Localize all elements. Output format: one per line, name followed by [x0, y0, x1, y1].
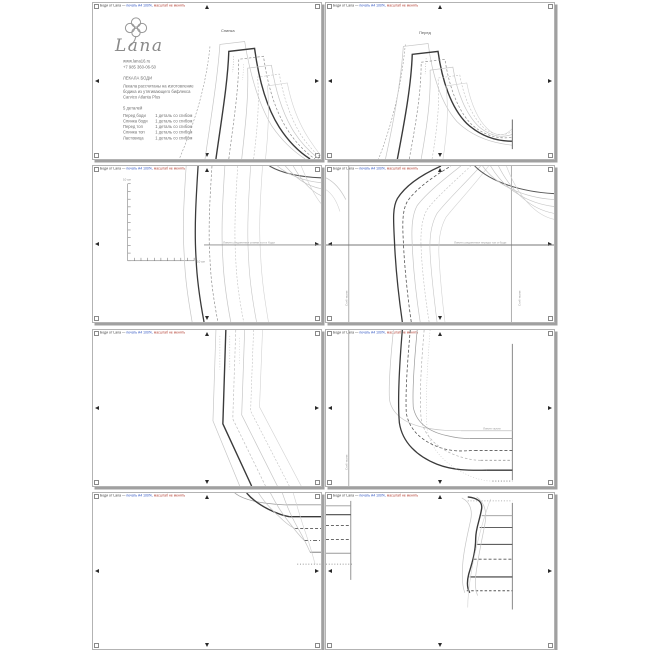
pattern-curves — [326, 330, 554, 486]
pattern-page-7: Боди от Lana — печать А4 100%, масштаб н… — [92, 492, 322, 650]
pattern-page-6: Боди от Lana — печать А4 100%, масштаб н… — [325, 329, 555, 487]
pattern-page-2: Боди от Lana — печать А4 100%, масштаб н… — [325, 2, 555, 160]
pages-grid: Lana www.lana16.ru +7 985 360-06-50 ЛЕКА… — [92, 2, 555, 650]
pattern-curves — [93, 166, 321, 322]
piece-label-spinka: Спинка — [221, 29, 235, 33]
piece-label-pered: Перед — [419, 31, 431, 35]
pattern-curves — [326, 3, 554, 159]
fold-line-label: Сгиб ткани — [345, 291, 348, 306]
pattern-curves — [93, 493, 321, 649]
pattern-curves — [93, 3, 321, 159]
pattern-sheet-canvas: Lana www.lana16.ru +7 985 360-06-50 ЛЕКА… — [0, 0, 650, 650]
pattern-page-3: Боди от Lana — печать А4 100%, масштаб н… — [92, 165, 322, 323]
pattern-curves — [93, 330, 321, 486]
join-line-label: Линия соединения переда топ и боди — [454, 241, 506, 244]
pattern-page-1: Lana www.lana16.ru +7 985 360-06-50 ЛЕКА… — [92, 2, 322, 160]
fold-line-label: Сгиб ткани — [345, 454, 348, 469]
ruler-label-horizontal: 10 см — [197, 260, 205, 263]
join-line-label: Линия соединения спинки топ и боди — [223, 241, 275, 244]
ruler-label-vertical: 10 см — [123, 178, 131, 181]
pattern-page-4: Боди от Lana — печать А4 100%, масштаб н… — [325, 165, 555, 323]
waist-line-label: Линия талии — [483, 427, 501, 430]
fold-line-label: Сгиб ткани — [518, 291, 521, 306]
pattern-page-5: Боди от Lana — печать А4 100%, масштаб н… — [92, 329, 322, 487]
pattern-page-8: Боди от Lana — печать А4 100%, масштаб н… — [325, 492, 555, 650]
pattern-curves — [326, 493, 554, 649]
